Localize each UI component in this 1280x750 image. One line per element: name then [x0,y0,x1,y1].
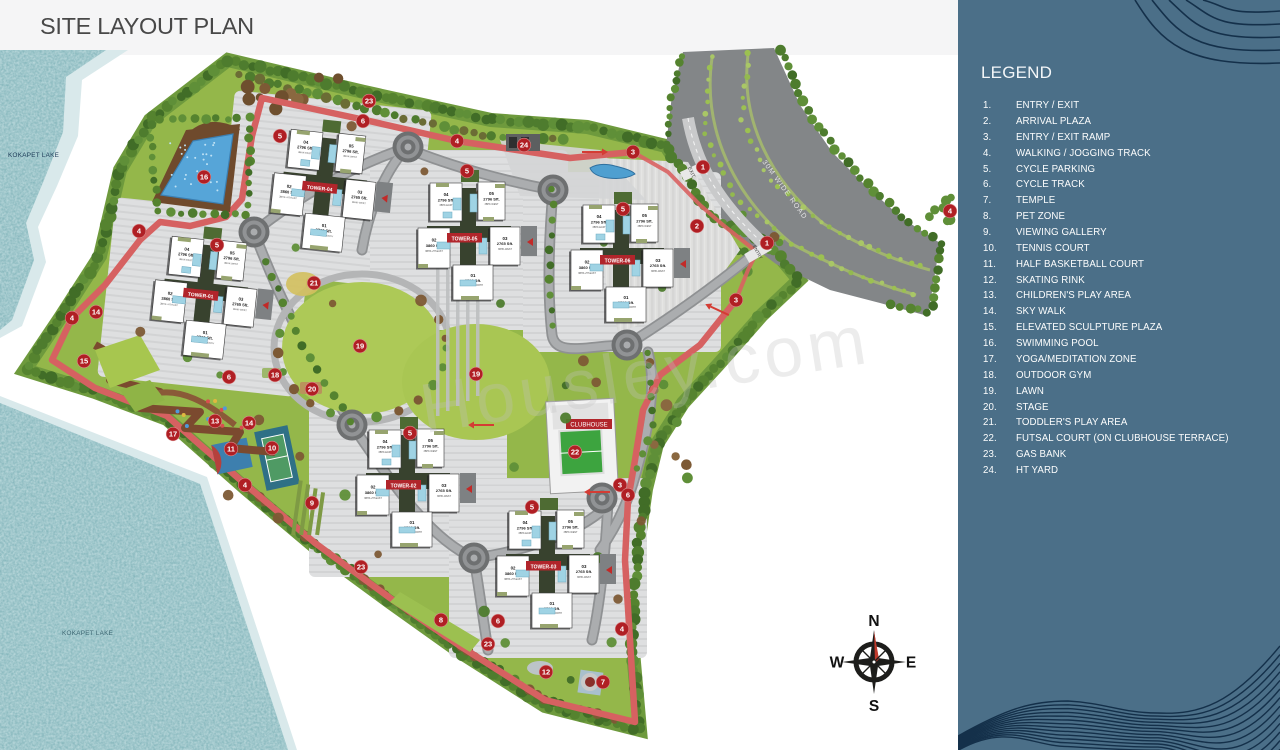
svg-text:1: 1 [701,163,705,172]
svg-text:02: 02 [432,238,437,243]
svg-text:TOWER-02: TOWER-02 [391,484,417,490]
svg-text:5: 5 [465,167,469,176]
svg-text:2765 Sft.: 2765 Sft. [497,241,513,246]
svg-text:05: 05 [642,213,647,218]
svg-text:3BHK-WEST: 3BHK-WEST [437,495,451,498]
svg-text:22: 22 [571,448,579,457]
svg-text:2: 2 [695,222,699,231]
svg-text:W: W [830,655,845,672]
svg-text:23: 23 [484,640,492,649]
svg-text:03: 03 [582,564,587,569]
svg-text:14: 14 [245,419,254,428]
svg-text:19: 19 [472,370,480,379]
svg-text:04: 04 [444,192,449,197]
svg-text:03: 03 [442,483,447,488]
svg-text:3BHK+HT-EAST: 3BHK+HT-EAST [578,272,596,275]
svg-text:N: N [868,613,879,630]
svg-text:24: 24 [520,141,529,150]
svg-text:04: 04 [597,214,602,219]
svg-text:21: 21 [310,279,318,288]
svg-text:3BHK-EAST: 3BHK-EAST [518,532,532,535]
svg-text:3BHK+HT-EAST: 3BHK+HT-EAST [364,497,382,500]
svg-text:5: 5 [278,132,282,141]
svg-text:TOWER-06: TOWER-06 [605,259,631,265]
svg-text:2796 Sft.: 2796 Sft. [517,525,533,530]
svg-text:2796 Sft.: 2796 Sft. [591,219,607,224]
svg-text:03: 03 [503,236,508,241]
svg-text:3BHK-WEST: 3BHK-WEST [424,450,438,453]
svg-text:23: 23 [357,563,365,572]
svg-text:2796 Sft.: 2796 Sft. [438,197,454,202]
svg-text:17: 17 [169,430,177,439]
svg-text:19: 19 [356,342,364,351]
svg-text:7: 7 [601,678,605,687]
svg-text:3: 3 [618,481,622,490]
svg-text:5: 5 [408,429,412,438]
svg-text:3BHK-WEST: 3BHK-WEST [638,225,652,228]
svg-text:6: 6 [496,617,500,626]
svg-text:05: 05 [568,519,573,524]
svg-text:20: 20 [308,385,316,394]
svg-text:16: 16 [200,173,208,182]
svg-text:18: 18 [271,371,279,380]
svg-text:2796 Sft.: 2796 Sft. [377,444,393,449]
svg-text:S: S [869,698,879,715]
svg-text:3BHK-EAST: 3BHK-EAST [439,204,453,207]
svg-text:04: 04 [383,439,388,444]
svg-text:02: 02 [585,260,590,265]
svg-text:11: 11 [227,445,235,454]
svg-text:05: 05 [489,191,494,196]
svg-text:3BHK+HT-EAST: 3BHK+HT-EAST [504,578,522,581]
svg-text:2796 Sft.: 2796 Sft. [636,218,652,223]
svg-text:3BHK-EAST: 3BHK-EAST [378,451,392,454]
svg-text:8: 8 [439,616,443,625]
svg-text:3BHK-WEST: 3BHK-WEST [498,248,512,251]
svg-text:5: 5 [621,205,625,214]
svg-text:3: 3 [734,296,738,305]
svg-text:5: 5 [215,241,219,250]
svg-text:5: 5 [530,503,534,512]
svg-text:23: 23 [365,97,373,106]
svg-text:2796 Sft.: 2796 Sft. [483,196,499,201]
svg-text:12: 12 [542,668,550,677]
svg-text:2796 Sft.: 2796 Sft. [562,524,578,529]
svg-text:02: 02 [511,566,516,571]
svg-text:1: 1 [765,239,769,248]
svg-text:E: E [906,655,916,672]
svg-text:TOWER-03: TOWER-03 [531,565,557,571]
svg-text:6: 6 [361,117,365,126]
svg-text:04: 04 [523,520,528,525]
svg-text:3BHK+HT-EAST: 3BHK+HT-EAST [425,250,443,253]
svg-text:3: 3 [631,148,635,157]
svg-text:14: 14 [92,308,101,317]
svg-text:02: 02 [371,485,376,490]
svg-text:3BHK-WEST: 3BHK-WEST [577,576,591,579]
svg-text:3BHK-WEST: 3BHK-WEST [651,270,665,273]
svg-text:10: 10 [268,444,276,453]
svg-text:2765 Sft.: 2765 Sft. [436,488,452,493]
svg-text:3BHK-WEST: 3BHK-WEST [485,203,499,206]
svg-text:3BHK-WEST: 3BHK-WEST [564,531,578,534]
svg-text:03: 03 [656,258,661,263]
svg-text:2765 Sft.: 2765 Sft. [576,569,592,574]
svg-text:3BHK-EAST: 3BHK-EAST [592,226,606,229]
svg-text:6: 6 [227,373,231,382]
svg-text:13: 13 [211,417,219,426]
svg-text:KOKAPET LAKE: KOKAPET LAKE [8,152,59,159]
svg-text:9: 9 [310,499,314,508]
svg-text:6: 6 [626,491,630,500]
svg-text:KOKAPET LAKE: KOKAPET LAKE [62,630,113,637]
svg-text:2765 Sft.: 2765 Sft. [650,263,666,268]
svg-text:15: 15 [80,357,88,366]
svg-text:TOWER-05: TOWER-05 [452,237,478,243]
